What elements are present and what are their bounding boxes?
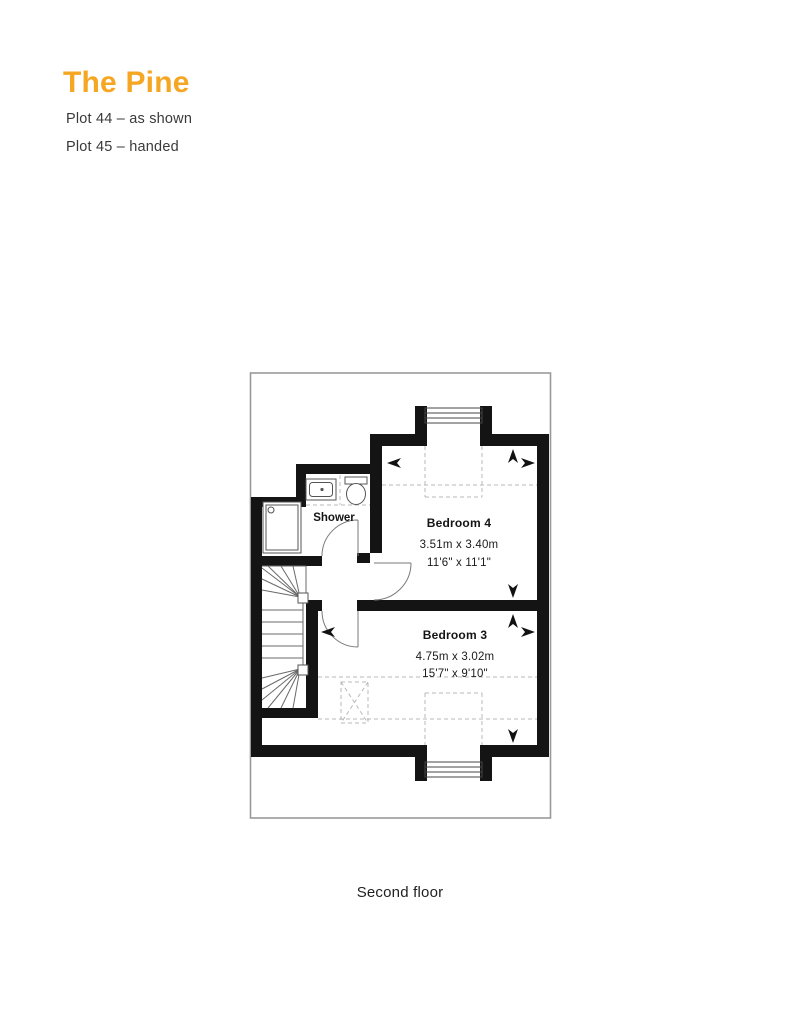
door-swing-bedroom4	[374, 563, 411, 600]
sink-fixture	[306, 479, 336, 500]
bedroom4-name: Bedroom 4	[427, 516, 492, 530]
bedroom3-name: Bedroom 3	[423, 628, 488, 642]
room-label-bedroom4: Bedroom 4 3.51m x 3.40m 11'6" x 11'1"	[420, 516, 499, 569]
toilet-fixture	[345, 477, 367, 505]
storage-box	[341, 682, 368, 723]
floor-caption: Second floor	[0, 884, 800, 901]
floor-plan: Shower Bedroom 4 3.51m x 3.40m 11'6" x 1…	[0, 372, 800, 819]
door-swing-shower	[322, 520, 358, 556]
bedroom3-imperial: 15'7" x 9'10"	[422, 668, 488, 680]
arrow-down-icon	[508, 584, 518, 598]
arrow-right-icon	[521, 627, 535, 637]
arrow-left-icon	[321, 627, 335, 637]
shower-tray-fixture	[263, 502, 301, 553]
bedroom3-metric: 4.75m x 3.02m	[416, 651, 495, 663]
arrow-right-icon	[521, 458, 535, 468]
arrow-left-icon	[387, 458, 401, 468]
arrow-up-icon	[508, 449, 518, 463]
bedroom4-imperial: 11'6" x 11'1"	[427, 557, 491, 569]
staircase	[262, 566, 308, 708]
door-swing-bedroom3	[322, 611, 358, 647]
arrow-down-icon	[508, 729, 518, 743]
room-label-bedroom3: Bedroom 3 4.75m x 3.02m 15'7" x 9'10"	[416, 628, 495, 680]
arrow-up-icon	[508, 614, 518, 628]
page-title: The Pine	[63, 66, 190, 100]
plot-44-label: Plot 44 – as shown	[66, 111, 192, 127]
floor-plan-svg: Shower Bedroom 4 3.51m x 3.40m 11'6" x 1…	[0, 372, 800, 819]
dashed-guides	[306, 446, 537, 745]
window-bottom	[425, 762, 482, 777]
bedroom4-metric: 3.51m x 3.40m	[420, 539, 499, 551]
shower-label: Shower	[313, 512, 355, 524]
plot-45-label: Plot 45 – handed	[66, 139, 179, 155]
window-top	[425, 408, 482, 423]
